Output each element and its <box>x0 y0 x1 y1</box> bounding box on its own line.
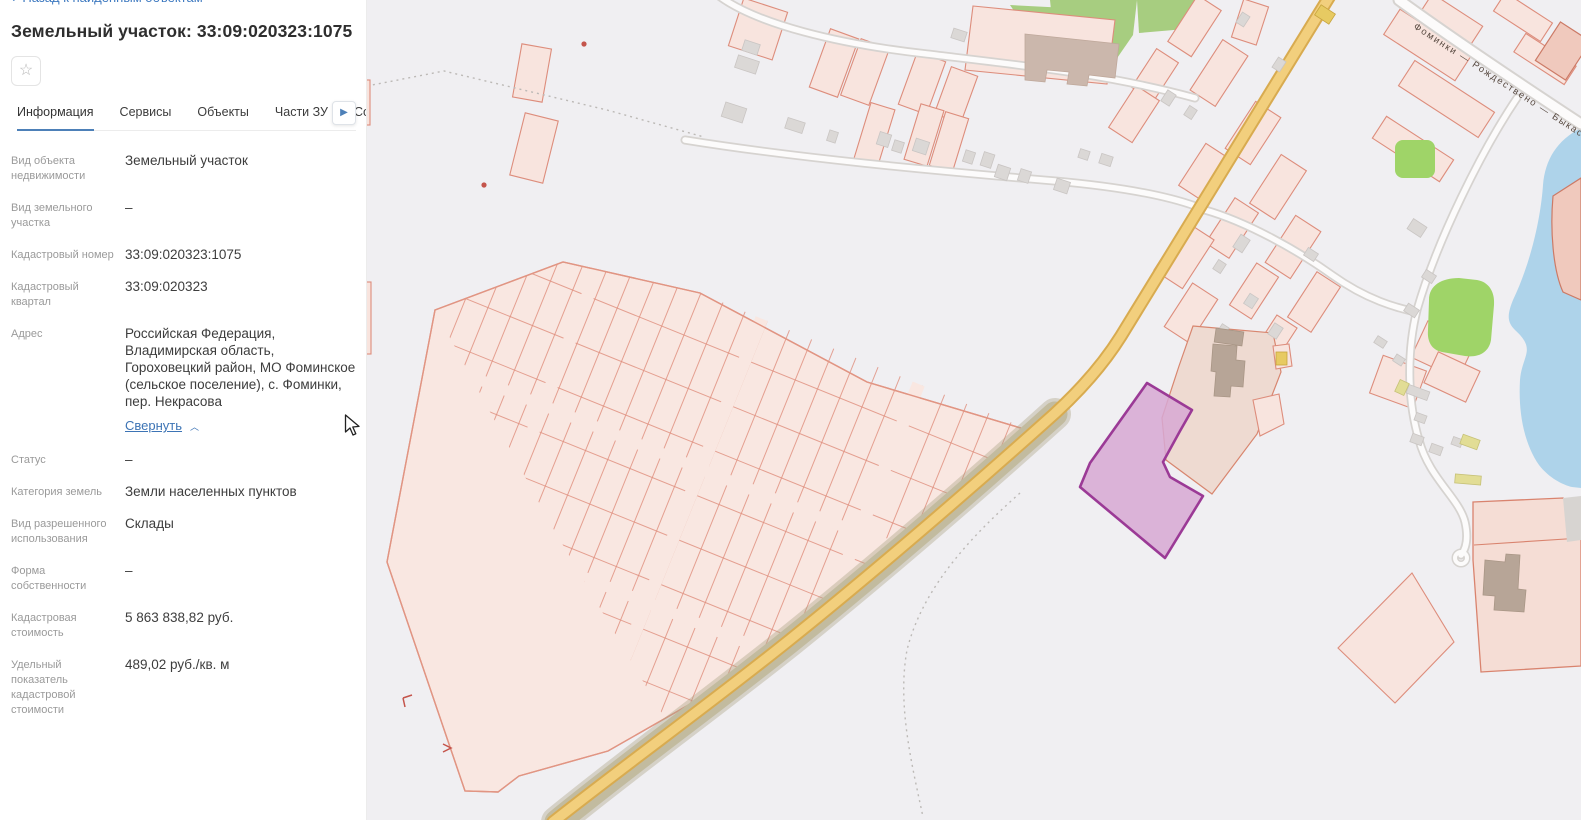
collapse-link[interactable]: Свернуть <box>125 418 182 433</box>
star-icon: ☆ <box>19 62 33 79</box>
field-label: Кадастровый номер <box>11 246 117 263</box>
field-row: Кадастровый квартал33:09:020323 <box>11 278 356 310</box>
field-label: Кадастровый квартал <box>11 278 117 310</box>
tab-parcel-parts[interactable]: Части ЗУ <box>275 99 328 130</box>
building <box>1455 474 1482 485</box>
field-value: Склады <box>125 515 356 547</box>
map-canvas[interactable]: Фоминки — Рождествено — Быкасово <box>367 0 1581 820</box>
field-value: Земельный участок <box>125 152 356 184</box>
page-title: Земельный участок: 33:09:020323:1075 <box>11 21 356 42</box>
map-area[interactable]: Фоминки — Рождествено — Быкасово <box>367 0 1581 820</box>
point-marker <box>581 41 586 46</box>
green-patch <box>1428 278 1494 356</box>
field-label: Вид разрешенного использования <box>11 515 117 547</box>
address-collapse-row: Свернуть︿ <box>125 417 356 436</box>
field-row: Кадастровая стоимость5 863 838,82 руб. <box>11 609 356 641</box>
field-row: Удельный показатель кадастровой стоимост… <box>11 656 356 718</box>
tab-information[interactable]: Информация <box>17 99 94 131</box>
map-parcel <box>367 282 371 354</box>
parcel-info-panel: ‹Назад к найденным объектам Земельный уч… <box>0 0 367 820</box>
tabs-bar: Информация Сервисы Объекты Части ЗУ Сост… <box>17 99 356 131</box>
field-value: 33:09:020323 <box>125 278 356 310</box>
field-value: 489,02 руб./кв. м <box>125 656 356 718</box>
favorite-button[interactable]: ☆ <box>11 56 41 86</box>
field-value: Российская Федерация, Владимирская облас… <box>125 325 356 436</box>
field-row: Вид разрешенного использованияСклады <box>11 515 356 547</box>
back-link[interactable]: ‹Назад к найденным объектам <box>11 0 356 8</box>
field-row: Вид земельного участка– <box>11 199 356 231</box>
field-label: Форма собственности <box>11 562 117 594</box>
field-label: Вид земельного участка <box>11 199 117 231</box>
point-marker <box>481 182 486 187</box>
field-row-address: Адрес Российская Федерация, Владимирская… <box>11 325 356 436</box>
address-text: Российская Федерация, Владимирская облас… <box>125 326 355 409</box>
field-row: Категория земельЗемли населенных пунктов <box>11 483 356 500</box>
building <box>1276 352 1287 365</box>
field-value: 5 863 838,82 руб. <box>125 609 356 641</box>
field-value: Земли населенных пунктов <box>125 483 356 500</box>
field-label: Категория земель <box>11 483 117 500</box>
back-chevron-icon: ‹ <box>11 0 15 5</box>
field-value: – <box>125 562 356 594</box>
field-row: Кадастровый номер33:09:020323:1075 <box>11 246 356 263</box>
field-row: Форма собственности– <box>11 562 356 594</box>
green-patch <box>1395 140 1435 178</box>
field-row: Вид объекта недвижимостиЗемельный участо… <box>11 152 356 184</box>
field-label: Вид объекта недвижимости <box>11 152 117 184</box>
map-parcel <box>367 80 370 125</box>
field-value: – <box>125 199 356 231</box>
field-label: Адрес <box>11 325 117 436</box>
tabs-scroll-right-button[interactable]: ▶ <box>332 101 356 125</box>
field-label: Удельный показатель кадастровой стоимост… <box>11 656 117 718</box>
field-value: 33:09:020323:1075 <box>125 246 356 263</box>
attributes-list: Вид объекта недвижимостиЗемельный участо… <box>11 152 356 718</box>
tab-services[interactable]: Сервисы <box>120 99 172 130</box>
field-value: – <box>125 451 356 468</box>
field-row: Статус– <box>11 451 356 468</box>
back-link-label: Назад к найденным объектам <box>22 0 202 5</box>
tab-objects[interactable]: Объекты <box>197 99 249 130</box>
chevron-right-icon: ▶ <box>340 107 348 118</box>
chevron-up-icon: ︿ <box>190 422 199 432</box>
field-label: Кадастровая стоимость <box>11 609 117 641</box>
field-label: Статус <box>11 451 117 468</box>
